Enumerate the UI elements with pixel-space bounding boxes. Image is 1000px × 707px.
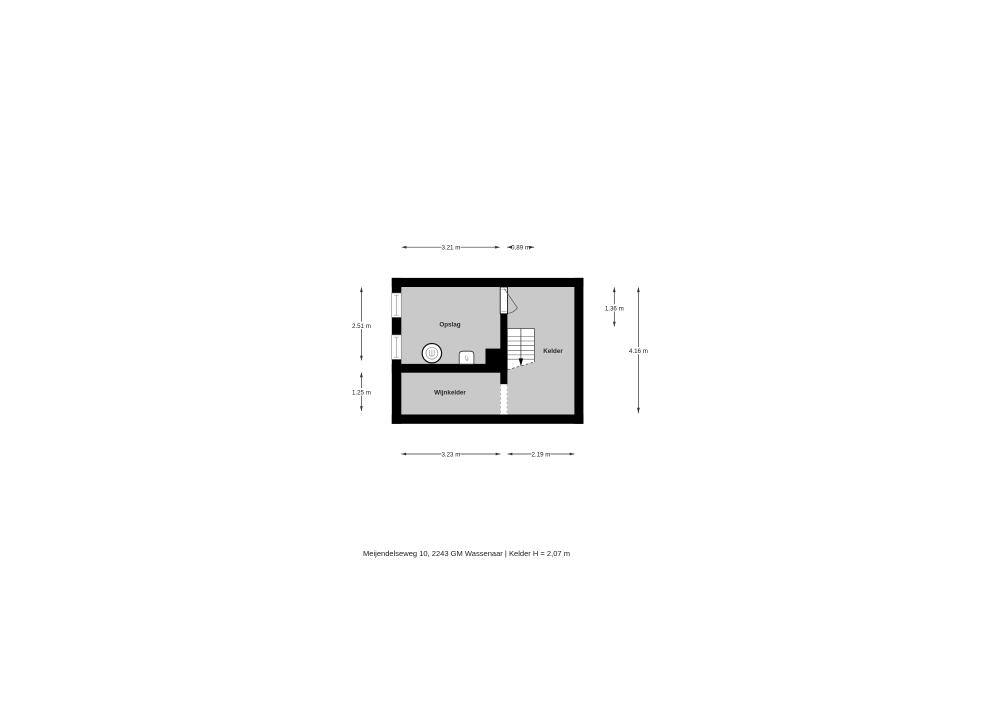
svg-text:2.19 m: 2.19 m xyxy=(532,451,551,458)
svg-text:Meijendelseweg 10, 2243 GM Was: Meijendelseweg 10, 2243 GM Wassenaar | K… xyxy=(363,549,570,558)
svg-text:Wijnkelder: Wijnkelder xyxy=(434,390,466,397)
svg-text:4.16 m: 4.16 m xyxy=(629,348,648,355)
svg-text:3.21 m: 3.21 m xyxy=(441,245,460,252)
svg-text:1.25 m: 1.25 m xyxy=(352,389,371,396)
svg-text:2.51 m: 2.51 m xyxy=(352,323,371,330)
svg-text:Kelder: Kelder xyxy=(543,348,563,355)
svg-text:3.23 m: 3.23 m xyxy=(441,451,460,458)
svg-text:0.89 m: 0.89 m xyxy=(511,245,530,252)
svg-text:Opslag: Opslag xyxy=(439,322,460,329)
svg-text:1.36 m: 1.36 m xyxy=(605,305,624,312)
